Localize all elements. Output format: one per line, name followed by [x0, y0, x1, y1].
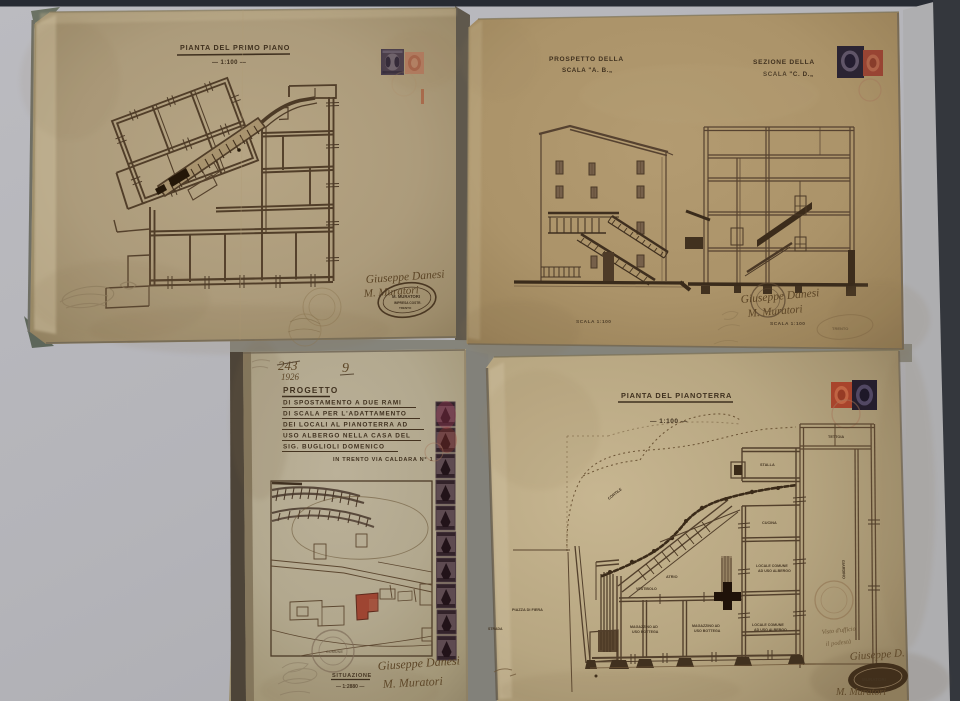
svg-text:VESTIBOLO: VESTIBOLO: [636, 587, 657, 591]
svg-text:IN TRENTO VIA CALDARA N° 1: IN TRENTO VIA CALDARA N° 1: [333, 457, 433, 463]
svg-text:COMUNE: COMUNE: [326, 650, 343, 654]
svg-text:PIAZZA DI FIERA: PIAZZA DI FIERA: [512, 608, 543, 612]
svg-text:SIG. BUGLIOLI DOMENICO: SIG. BUGLIOLI DOMENICO: [283, 444, 385, 451]
svg-text:ATRIO: ATRIO: [666, 575, 678, 579]
svg-text:PROGETTO: PROGETTO: [283, 386, 338, 395]
svg-text:SCALA "A. B.„: SCALA "A. B.„: [562, 67, 613, 74]
svg-text:LOCALE COMUNE: LOCALE COMUNE: [756, 564, 788, 568]
svg-text:DI SCALA PER L'ADATTAMENTO: DI SCALA PER L'ADATTAMENTO: [283, 411, 407, 418]
svg-text:SEZIONE DELLA: SEZIONE DELLA: [753, 59, 815, 66]
svg-text:9: 9: [342, 361, 349, 376]
svg-text:CUCINA: CUCINA: [762, 521, 777, 525]
svg-text:USO BOTTEGA: USO BOTTEGA: [694, 629, 721, 633]
svg-text:M. MURATORI: M. MURATORI: [392, 294, 420, 299]
svg-text:USO ALBERGO NELLA CASA DEL: USO ALBERGO NELLA CASA DEL: [283, 433, 411, 440]
svg-text:PROSPETTO DELLA: PROSPETTO DELLA: [549, 56, 624, 63]
svg-text:STRADA: STRADA: [488, 627, 503, 631]
svg-text:GIARDINO: GIARDINO: [841, 560, 846, 579]
svg-text:AD USO ALBERGO: AD USO ALBERGO: [758, 569, 791, 573]
svg-text:STALLA: STALLA: [760, 463, 775, 467]
svg-text:MAGAZZINO AD: MAGAZZINO AD: [630, 625, 658, 629]
svg-text:TRENTO: TRENTO: [399, 306, 412, 310]
svg-text:— 1:100 —: — 1:100 —: [212, 60, 246, 66]
svg-text:— 1:100 —: — 1:100 —: [650, 418, 688, 425]
svg-text:LOCALE COMUNE: LOCALE COMUNE: [752, 623, 784, 627]
svg-text:SCALA 1:100: SCALA 1:100: [770, 321, 805, 327]
svg-text:PIANTA DEL PRIMO PIANO: PIANTA DEL PRIMO PIANO: [180, 43, 290, 52]
svg-text:USO BOTTEGA: USO BOTTEGA: [632, 630, 659, 634]
svg-text:IMPRESA COSTR.: IMPRESA COSTR.: [394, 301, 421, 305]
svg-text:DI SPOSTAMENTO A DUE RAMI: DI SPOSTAMENTO A DUE RAMI: [283, 400, 402, 407]
svg-text:AD USO ALBERGO: AD USO ALBERGO: [754, 628, 787, 632]
svg-text:TETTOIA: TETTOIA: [828, 435, 844, 439]
svg-text:MAGAZZINO AD: MAGAZZINO AD: [692, 624, 720, 628]
svg-text:PIANTA DEL PIANOTERRA: PIANTA DEL PIANOTERRA: [621, 391, 732, 400]
svg-text:SCALA 1:100: SCALA 1:100: [576, 319, 611, 325]
svg-text:DEI LOCALI AL PIANOTERRA AD: DEI LOCALI AL PIANOTERRA AD: [283, 422, 408, 429]
